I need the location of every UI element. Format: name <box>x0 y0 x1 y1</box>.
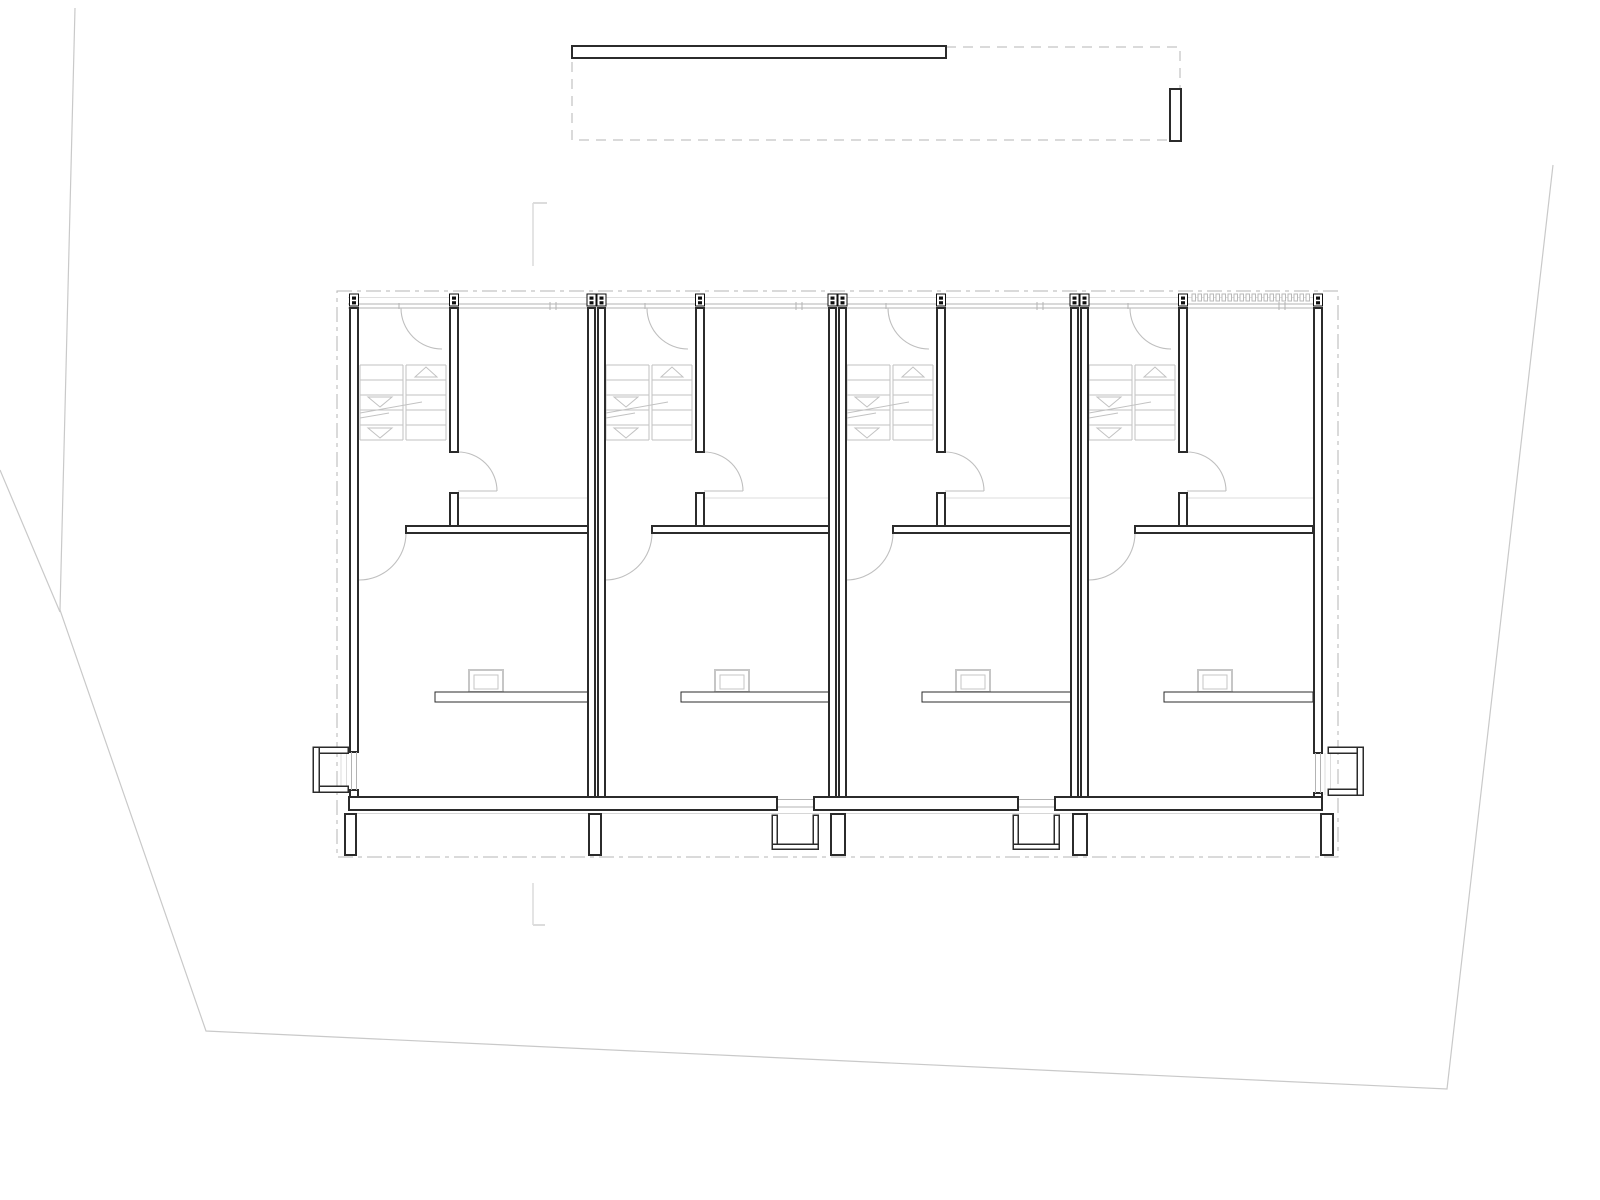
column-marker <box>696 294 705 306</box>
foundation-pier <box>589 814 601 855</box>
kitchen-counter <box>1164 692 1313 702</box>
floor-plan-sheet <box>0 0 1600 1200</box>
column-marker <box>1314 294 1323 306</box>
stub-wall <box>696 493 704 527</box>
column-marker <box>937 294 946 306</box>
bottom-wall-segment <box>814 797 1018 810</box>
column-marker <box>597 294 606 306</box>
kitchen-sink <box>1198 670 1232 692</box>
floor-plan-drawing <box>0 0 1600 1200</box>
exterior-wall-right <box>1314 308 1322 753</box>
stub-wall <box>450 493 458 527</box>
column-marker <box>828 294 837 306</box>
kitchen-counter <box>435 692 588 702</box>
kitchen-counter <box>922 692 1071 702</box>
kitchen-sink <box>715 670 749 692</box>
column-marker <box>1070 294 1079 306</box>
exterior-wall-left-corner <box>350 790 358 797</box>
foundation-pier <box>1321 814 1333 855</box>
column-marker <box>1080 294 1089 306</box>
interior-wall <box>937 308 945 452</box>
party-wall <box>1081 308 1088 797</box>
sheet-background <box>0 0 1600 1200</box>
bottom-wall-segment <box>1055 797 1322 810</box>
column-marker <box>350 294 359 306</box>
party-wall <box>1071 308 1078 797</box>
roof-end-bar <box>1170 89 1181 141</box>
column-marker <box>838 294 847 306</box>
interior-wall <box>696 308 704 452</box>
roof-ridge-bar <box>572 46 946 58</box>
foundation-pier <box>831 814 845 855</box>
stub-wall <box>937 493 945 527</box>
column-marker <box>587 294 596 306</box>
cross-wall <box>406 526 588 533</box>
kitchen-counter <box>681 692 829 702</box>
stub-wall <box>1179 493 1187 527</box>
cross-wall <box>652 526 829 533</box>
bottom-wall-segment <box>349 797 777 810</box>
interior-wall <box>450 308 458 452</box>
foundation-pier <box>345 814 356 855</box>
foundation-pier <box>1073 814 1087 855</box>
party-wall <box>839 308 846 797</box>
interior-wall <box>1179 308 1187 452</box>
party-wall <box>588 308 595 797</box>
kitchen-sink <box>956 670 990 692</box>
column-marker <box>450 294 459 306</box>
cross-wall <box>893 526 1071 533</box>
exterior-wall-left <box>350 308 358 752</box>
column-marker <box>1179 294 1188 306</box>
kitchen-sink <box>469 670 503 692</box>
cross-wall <box>1135 526 1313 533</box>
party-wall <box>598 308 605 797</box>
party-wall <box>829 308 836 797</box>
